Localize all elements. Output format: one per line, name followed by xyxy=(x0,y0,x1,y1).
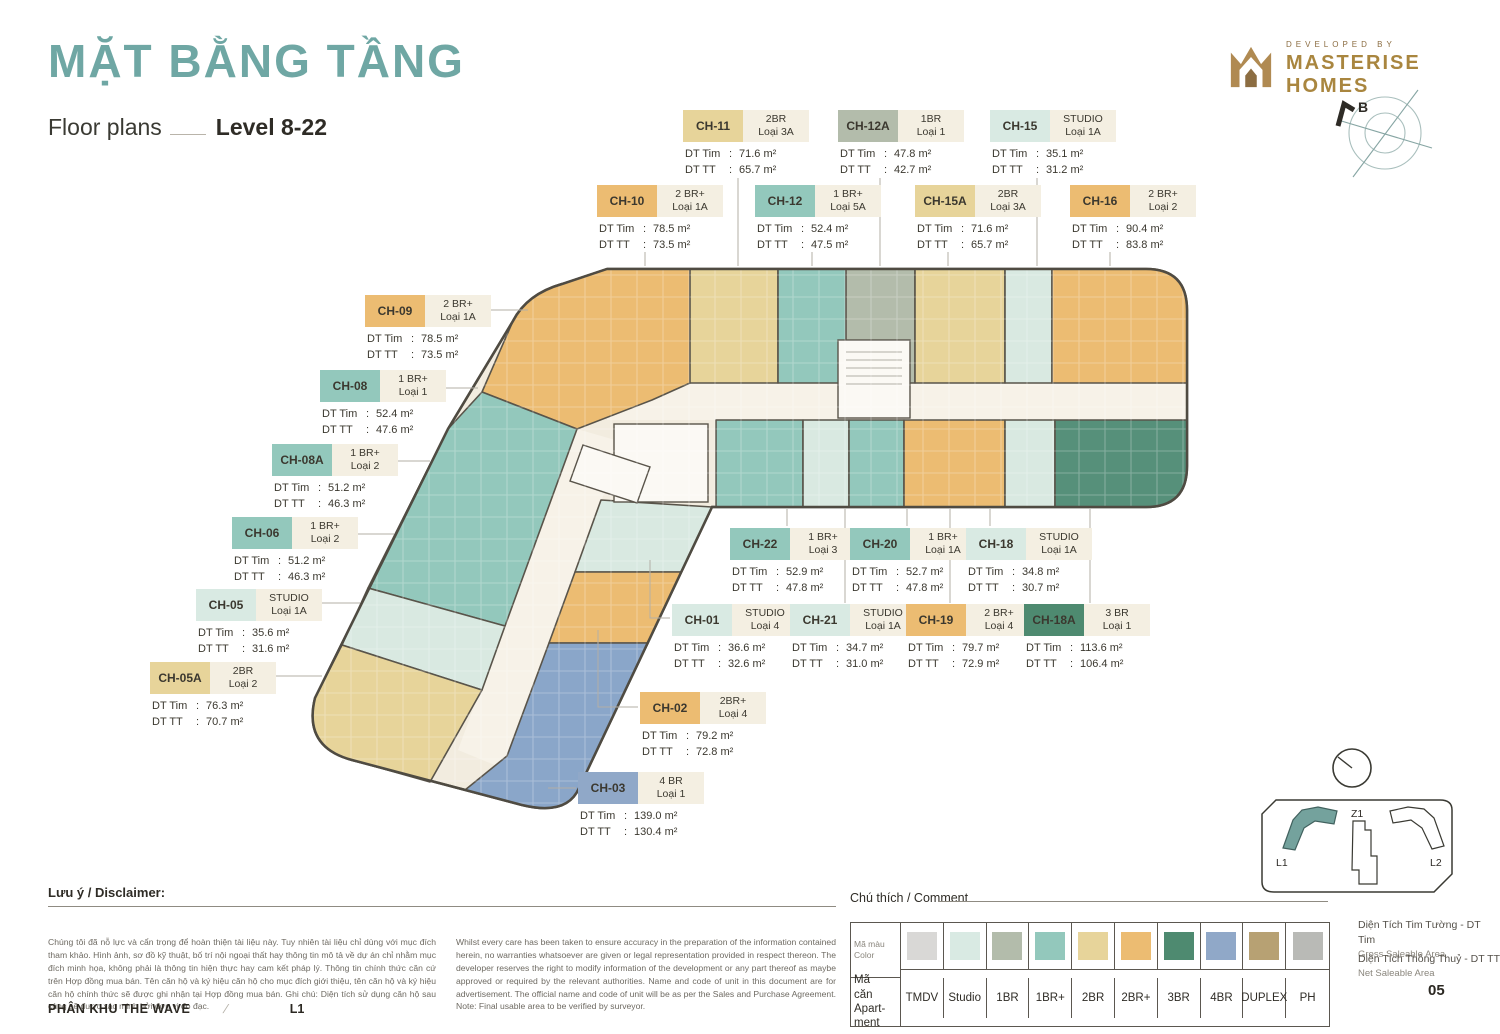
net-area-vi: Diện Tích Thông Thuỷ - DT TT xyxy=(1358,952,1500,967)
legend-swatch-DUPLEX xyxy=(1243,923,1286,970)
unit-net-area: DT TT:31.0 m² xyxy=(792,657,918,673)
unit-gross-area: DT Tim:113.6 m² xyxy=(1026,641,1152,657)
unit-bedroom-type: 2 BR+ xyxy=(1148,188,1177,201)
unit-net-area: DT TT:31.2 m² xyxy=(992,163,1118,179)
unit-code: CH-12A xyxy=(838,110,898,142)
unit-gross-area: DT Tim:139.0 m² xyxy=(580,809,706,825)
unit-callout: CH-15A 2BR Loại 3A DT Tim:71.6 m² DT TT:… xyxy=(915,185,1043,254)
unit-gross-area: DT Tim:51.2 m² xyxy=(274,481,400,497)
unit-layout-type: Loại 1A xyxy=(1041,544,1077,557)
unit-gross-area: DT Tim:79.2 m² xyxy=(642,729,768,745)
legend-swatch-2BR xyxy=(1072,923,1115,970)
unit-type: 1 BR+ Loại 2 xyxy=(292,517,358,549)
unit-gross-area: DT Tim:52.7 m² xyxy=(852,565,978,581)
legend-table: Mã màuColorMãcănApart-mentTMDVStudio1BR1… xyxy=(850,922,1330,1027)
legend-label-PH: PH xyxy=(1286,978,1329,1018)
unit-gross-area: DT Tim:52.4 m² xyxy=(757,222,883,238)
unit-code: CH-21 xyxy=(790,604,850,636)
unit-code: CH-08 xyxy=(320,370,380,402)
legend-label-1BR+: 1BR+ xyxy=(1029,978,1072,1018)
unit-layout-type: Loại 3 xyxy=(809,544,838,557)
unit-layout-type: Loại 2 xyxy=(1149,201,1178,214)
developed-by-label: DEVELOPED BY xyxy=(1286,40,1500,49)
unit-layout-type: Loại 1 xyxy=(399,386,428,399)
unit-areas-text: DT Tim:52.7 m² DT TT:47.8 m² xyxy=(850,565,978,597)
unit-gross-area: DT Tim:52.4 m² xyxy=(322,407,448,423)
unit-type: 2 BR+ Loại 1A xyxy=(425,295,491,327)
unit-callout: CH-12 1 BR+ Loại 5A DT Tim:52.4 m² DT TT… xyxy=(755,185,883,254)
unit-code: CH-19 xyxy=(906,604,966,636)
unit-type: STUDIO Loại 4 xyxy=(732,604,798,636)
unit-bedroom-type: 2 BR+ xyxy=(984,607,1013,620)
unit-layout-type: Loại 2 xyxy=(311,533,340,546)
unit-callout-header: CH-12 1 BR+ Loại 5A xyxy=(755,185,883,217)
unit-net-area: DT TT:30.7 m² xyxy=(968,581,1094,597)
unit-callout: CH-05A 2BR Loại 2 DT Tim:76.3 m² DT TT:7… xyxy=(150,662,278,731)
unit-layout-type: Loại 2 xyxy=(351,460,380,473)
unit-layout-type: Loại 4 xyxy=(751,620,780,633)
unit-gross-area: DT Tim:78.5 m² xyxy=(367,332,493,348)
legend-swatch-Studio xyxy=(944,923,987,970)
unit-gross-area: DT Tim:90.4 m² xyxy=(1072,222,1198,238)
unit-layout-type: Loại 1A xyxy=(440,311,476,324)
unit-type: 1 BR+ Loại 1 xyxy=(380,370,446,402)
unit-bedroom-type: 2 BR+ xyxy=(443,298,472,311)
unit-gross-area: DT Tim:36.6 m² xyxy=(674,641,800,657)
unit-code: CH-01 xyxy=(672,604,732,636)
legend-label-1BR: 1BR xyxy=(987,978,1030,1018)
unit-callout-header: CH-18 STUDIO Loại 1A xyxy=(966,528,1094,560)
unit-type: 1 BR+ Loại 3 xyxy=(790,528,856,560)
area-note-net: Diện Tích Thông Thuỷ - DT TT Net Saleabl… xyxy=(1358,952,1500,981)
unit-areas-text: DT Tim:34.7 m² DT TT:31.0 m² xyxy=(790,641,918,673)
legend-label-2BR: 2BR xyxy=(1072,978,1115,1018)
unit-gross-area: DT Tim:34.8 m² xyxy=(968,565,1094,581)
unit-callout-header: CH-19 2 BR+ Loại 4 xyxy=(906,604,1034,636)
unit-callout-header: CH-11 2BR Loại 3A xyxy=(683,110,811,142)
unit-net-area: DT TT:46.3 m² xyxy=(274,497,400,513)
legend-label-3BR: 3BR xyxy=(1158,978,1201,1018)
unit-code: CH-22 xyxy=(730,528,790,560)
unit-callout-header: CH-01 STUDIO Loại 4 xyxy=(672,604,800,636)
unit-layout-type: Loại 1A xyxy=(1065,126,1101,139)
unit-code: CH-05A xyxy=(150,662,210,694)
unit-areas-text: DT Tim:52.4 m² DT TT:47.6 m² xyxy=(320,407,448,439)
unit-callout: CH-02 2BR+ Loại 4 DT Tim:79.2 m² DT TT:7… xyxy=(640,692,768,761)
unit-areas-text: DT Tim:79.7 m² DT TT:72.9 m² xyxy=(906,641,1034,673)
unit-callout: CH-03 4 BR Loại 1 DT Tim:139.0 m² DT TT:… xyxy=(578,772,706,841)
unit-layout-type: Loại 4 xyxy=(719,708,748,721)
unit-layout-type: Loại 3A xyxy=(758,126,794,139)
unit-callout-header: CH-22 1 BR+ Loại 3 xyxy=(730,528,858,560)
unit-bedroom-type: STUDIO xyxy=(1039,531,1079,544)
unit-type: 4 BR Loại 1 xyxy=(638,772,704,804)
page-subtitle: Floor plans Level 8-22 xyxy=(48,114,327,141)
unit-callout: CH-21 STUDIO Loại 1A DT Tim:34.7 m² DT T… xyxy=(790,604,918,673)
unit-callout-header: CH-20 1 BR+ Loại 1A xyxy=(850,528,978,560)
unit-callout: CH-11 2BR Loại 3A DT Tim:71.6 m² DT TT:6… xyxy=(683,110,811,179)
unit-net-area: DT TT:47.5 m² xyxy=(757,238,883,254)
legend-swatch-TMDV xyxy=(901,923,944,970)
unit-type: 2BR Loại 3A xyxy=(975,185,1041,217)
unit-type: 2 BR+ Loại 1A xyxy=(657,185,723,217)
legend-label-Studio: Studio xyxy=(944,978,987,1018)
unit-net-area: DT TT:130.4 m² xyxy=(580,825,706,841)
unit-type: STUDIO Loại 1A xyxy=(1050,110,1116,142)
unit-code: CH-03 xyxy=(578,772,638,804)
compass-icon: B xyxy=(1338,90,1432,177)
masterise-logo-icon xyxy=(1228,44,1274,95)
unit-callout-header: CH-06 1 BR+ Loại 2 xyxy=(232,517,360,549)
unit-net-area: DT TT:65.7 m² xyxy=(917,238,1043,254)
unit-layout-type: Loại 1 xyxy=(1103,620,1132,633)
unit-layout-type: Loại 1 xyxy=(917,126,946,139)
unit-type: 1 BR+ Loại 2 xyxy=(332,444,398,476)
unit-bedroom-type: 2BR+ xyxy=(720,695,747,708)
legend-swatch-1BR xyxy=(987,923,1030,970)
zone-name: PHÂN KHU THE WAVE xyxy=(48,1002,190,1016)
unit-bedroom-type: 1 BR+ xyxy=(928,531,957,544)
unit-callout-header: CH-08 1 BR+ Loại 1 xyxy=(320,370,448,402)
unit-callout: CH-08 1 BR+ Loại 1 DT Tim:52.4 m² DT TT:… xyxy=(320,370,448,439)
unit-code: CH-11 xyxy=(683,110,743,142)
unit-net-area: DT TT:83.8 m² xyxy=(1072,238,1198,254)
unit-callout: CH-08A 1 BR+ Loại 2 DT Tim:51.2 m² DT TT… xyxy=(272,444,400,513)
unit-type: 2 BR+ Loại 4 xyxy=(966,604,1032,636)
unit-code: CH-18 xyxy=(966,528,1026,560)
unit-net-area: DT TT:65.7 m² xyxy=(685,163,811,179)
unit-callout-header: CH-16 2 BR+ Loại 2 xyxy=(1070,185,1198,217)
unit-code: CH-20 xyxy=(850,528,910,560)
unit-gross-area: DT Tim:51.2 m² xyxy=(234,554,360,570)
unit-areas-text: DT Tim:76.3 m² DT TT:70.7 m² xyxy=(150,699,278,731)
gross-area-vi: Diện Tích Tim Tường - DT Tim xyxy=(1358,918,1500,948)
unit-net-area: DT TT:47.8 m² xyxy=(732,581,858,597)
unit-net-area: DT TT:73.5 m² xyxy=(599,238,725,254)
unit-callout-header: CH-09 2 BR+ Loại 1A xyxy=(365,295,493,327)
unit-bedroom-type: STUDIO xyxy=(1063,113,1103,126)
disclaimer-title: Lưu ý / Disclaimer: xyxy=(48,885,836,907)
legend-label-2BR+: 2BR+ xyxy=(1115,978,1158,1018)
unit-callout: CH-06 1 BR+ Loại 2 DT Tim:51.2 m² DT TT:… xyxy=(232,517,360,586)
legend-color-row-label: Mã màuColor xyxy=(851,923,901,978)
unit-callout-header: CH-15A 2BR Loại 3A xyxy=(915,185,1043,217)
unit-type: 2BR Loại 2 xyxy=(210,662,276,694)
unit-callout: CH-18 STUDIO Loại 1A DT Tim:34.8 m² DT T… xyxy=(966,528,1094,597)
unit-areas-text: DT Tim:52.9 m² DT TT:47.8 m² xyxy=(730,565,858,597)
footer: PHÂN KHU THE WAVE / L1 xyxy=(48,1002,304,1016)
unit-bedroom-type: 1BR xyxy=(921,113,941,126)
unit-code: CH-05 xyxy=(196,589,256,621)
unit-code: CH-08A xyxy=(272,444,332,476)
unit-layout-type: Loại 1 xyxy=(657,788,686,801)
unit-gross-area: DT Tim:76.3 m² xyxy=(152,699,278,715)
net-area-en: Net Saleable Area xyxy=(1358,967,1500,981)
legend-apartment-row-label: MãcănApart-ment xyxy=(851,978,901,1026)
legend-label-TMDV: TMDV xyxy=(901,978,944,1018)
unit-areas-text: DT Tim:113.6 m² DT TT:106.4 m² xyxy=(1024,641,1152,673)
unit-net-area: DT TT:73.5 m² xyxy=(367,348,493,364)
subtitle-divider xyxy=(170,134,206,135)
unit-bedroom-type: STUDIO xyxy=(745,607,785,620)
unit-type: 3 BR Loại 1 xyxy=(1084,604,1150,636)
unit-gross-area: DT Tim:79.7 m² xyxy=(908,641,1034,657)
unit-type: 1BR Loại 1 xyxy=(898,110,964,142)
legend-swatch-2BR+ xyxy=(1115,923,1158,970)
unit-callout: CH-09 2 BR+ Loại 1A DT Tim:78.5 m² DT TT… xyxy=(365,295,493,364)
legend-swatch-3BR xyxy=(1158,923,1201,970)
page-title: MẶT BẰNG TẦNG xyxy=(48,34,465,88)
unit-callout-header: CH-08A 1 BR+ Loại 2 xyxy=(272,444,400,476)
unit-areas-text: DT Tim:71.6 m² DT TT:65.7 m² xyxy=(683,147,811,179)
unit-net-area: DT TT:106.4 m² xyxy=(1026,657,1152,673)
unit-layout-type: Loại 4 xyxy=(985,620,1014,633)
unit-bedroom-type: 2 BR+ xyxy=(675,188,704,201)
unit-type: STUDIO Loại 1A xyxy=(1026,528,1092,560)
unit-callout: CH-10 2 BR+ Loại 1A DT Tim:78.5 m² DT TT… xyxy=(597,185,725,254)
unit-type: 2BR Loại 3A xyxy=(743,110,809,142)
unit-bedroom-type: 1 BR+ xyxy=(398,373,427,386)
unit-net-area: DT TT:47.6 m² xyxy=(322,423,448,439)
unit-areas-text: DT Tim:78.5 m² DT TT:73.5 m² xyxy=(365,332,493,364)
unit-bedroom-type: 4 BR xyxy=(659,775,682,788)
clock-icon xyxy=(1333,749,1371,787)
unit-gross-area: DT Tim:52.9 m² xyxy=(732,565,858,581)
legend-label-4BR: 4BR xyxy=(1201,978,1244,1018)
developer-name: MASTERISE HOMES xyxy=(1286,52,1500,98)
legend-swatch-1BR+ xyxy=(1029,923,1072,970)
unit-net-area: DT TT:70.7 m² xyxy=(152,715,278,731)
unit-areas-text: DT Tim:79.2 m² DT TT:72.8 m² xyxy=(640,729,768,761)
unit-type: 2BR+ Loại 4 xyxy=(700,692,766,724)
unit-code: CH-06 xyxy=(232,517,292,549)
unit-gross-area: DT Tim:71.6 m² xyxy=(685,147,811,163)
unit-layout-type: Loại 5A xyxy=(830,201,866,214)
unit-gross-area: DT Tim:35.6 m² xyxy=(198,626,324,642)
unit-areas-text: DT Tim:90.4 m² DT TT:83.8 m² xyxy=(1070,222,1198,254)
legend-title-rule xyxy=(938,901,1328,902)
unit-callout: CH-20 1 BR+ Loại 1A DT Tim:52.7 m² DT TT… xyxy=(850,528,978,597)
unit-bedroom-type: 1 BR+ xyxy=(833,188,862,201)
unit-callout-header: CH-18A 3 BR Loại 1 xyxy=(1024,604,1152,636)
subtitle-level: Level 8-22 xyxy=(216,114,327,141)
unit-areas-text: DT Tim:36.6 m² DT TT:32.6 m² xyxy=(672,641,800,673)
unit-code: CH-15A xyxy=(915,185,975,217)
unit-gross-area: DT Tim:34.7 m² xyxy=(792,641,918,657)
unit-code: CH-12 xyxy=(755,185,815,217)
unit-gross-area: DT Tim:35.1 m² xyxy=(992,147,1118,163)
unit-layout-type: Loại 3A xyxy=(990,201,1026,214)
legend-label-DUPLEX: DUPLEX xyxy=(1243,978,1286,1018)
unit-callout-header: CH-05A 2BR Loại 2 xyxy=(150,662,278,694)
unit-areas-text: DT Tim:52.4 m² DT TT:47.5 m² xyxy=(755,222,883,254)
unit-callout: CH-18A 3 BR Loại 1 DT Tim:113.6 m² DT TT… xyxy=(1024,604,1152,673)
unit-bedroom-type: 1 BR+ xyxy=(808,531,837,544)
unit-callout: CH-01 STUDIO Loại 4 DT Tim:36.6 m² DT TT… xyxy=(672,604,800,673)
legend-title: Chú thích / Comment xyxy=(850,891,1328,905)
unit-callout: CH-22 1 BR+ Loại 3 DT Tim:52.9 m² DT TT:… xyxy=(730,528,858,597)
unit-layout-type: Loại 2 xyxy=(229,678,258,691)
unit-bedroom-type: 2BR xyxy=(766,113,786,126)
unit-net-area: DT TT:32.6 m² xyxy=(674,657,800,673)
unit-code: CH-18A xyxy=(1024,604,1084,636)
unit-net-area: DT TT:46.3 m² xyxy=(234,570,360,586)
subtitle-floor-plans: Floor plans xyxy=(48,114,162,141)
disclaimer-text-en: Whilst every care has been taken to ensu… xyxy=(456,936,836,1013)
unit-callout-header: CH-05 STUDIO Loại 1A xyxy=(196,589,324,621)
unit-areas-text: DT Tim:47.8 m² DT TT:42.7 m² xyxy=(838,147,966,179)
minimap-l2-label: L2 xyxy=(1430,857,1442,869)
unit-bedroom-type: 3 BR xyxy=(1105,607,1128,620)
page-number: 05 xyxy=(1428,982,1445,999)
unit-callout-header: CH-03 4 BR Loại 1 xyxy=(578,772,706,804)
unit-bedroom-type: 2BR xyxy=(233,665,253,678)
unit-bedroom-type: 2BR xyxy=(998,188,1018,201)
legend-swatch-4BR xyxy=(1201,923,1244,970)
unit-areas-text: DT Tim:34.8 m² DT TT:30.7 m² xyxy=(966,565,1094,597)
unit-code: CH-09 xyxy=(365,295,425,327)
unit-net-area: DT TT:31.6 m² xyxy=(198,642,324,658)
unit-type: 2 BR+ Loại 2 xyxy=(1130,185,1196,217)
unit-net-area: DT TT:72.8 m² xyxy=(642,745,768,761)
unit-code: CH-10 xyxy=(597,185,657,217)
unit-areas-text: DT Tim:35.6 m² DT TT:31.6 m² xyxy=(196,626,324,658)
unit-bedroom-type: STUDIO xyxy=(269,592,309,605)
unit-areas-text: DT Tim:35.1 m² DT TT:31.2 m² xyxy=(990,147,1118,179)
legend-title-text: Chú thích / Comment xyxy=(850,891,978,905)
floor-plan-page: B L1 Z1 L2 MẶT BẰNG TẦNG Floor plans Lev… xyxy=(0,0,1500,1034)
unit-bedroom-type: 1 BR+ xyxy=(310,520,339,533)
unit-net-area: DT TT:72.9 m² xyxy=(908,657,1034,673)
unit-layout-type: Loại 1A xyxy=(672,201,708,214)
unit-gross-area: DT Tim:78.5 m² xyxy=(599,222,725,238)
unit-areas-text: DT Tim:71.6 m² DT TT:65.7 m² xyxy=(915,222,1043,254)
footer-level: L1 xyxy=(290,1002,305,1016)
minimap-l1-label: L1 xyxy=(1276,857,1288,869)
unit-gross-area: DT Tim:47.8 m² xyxy=(840,147,966,163)
unit-layout-type: Loại 1A xyxy=(271,605,307,618)
unit-callout: CH-05 STUDIO Loại 1A DT Tim:35.6 m² DT T… xyxy=(196,589,324,658)
unit-net-area: DT TT:47.8 m² xyxy=(852,581,978,597)
unit-callout-header: CH-10 2 BR+ Loại 1A xyxy=(597,185,725,217)
unit-bedroom-type: STUDIO xyxy=(863,607,903,620)
unit-callout: CH-19 2 BR+ Loại 4 DT Tim:79.7 m² DT TT:… xyxy=(906,604,1034,673)
unit-callout-header: CH-21 STUDIO Loại 1A xyxy=(790,604,918,636)
unit-callout-header: CH-15 STUDIO Loại 1A xyxy=(990,110,1118,142)
keyplan-minimap: L1 Z1 L2 xyxy=(1262,800,1452,892)
unit-code: CH-02 xyxy=(640,692,700,724)
unit-callout-header: CH-12A 1BR Loại 1 xyxy=(838,110,966,142)
unit-gross-area: DT Tim:71.6 m² xyxy=(917,222,1043,238)
unit-code: CH-16 xyxy=(1070,185,1130,217)
minimap-z1-label: Z1 xyxy=(1351,808,1363,820)
footer-slash-icon: / xyxy=(222,1002,231,1016)
unit-layout-type: Loại 1A xyxy=(925,544,961,557)
unit-callout: CH-15 STUDIO Loại 1A DT Tim:35.1 m² DT T… xyxy=(990,110,1118,179)
unit-bedroom-type: 1 BR+ xyxy=(350,447,379,460)
unit-type: STUDIO Loại 1A xyxy=(256,589,322,621)
unit-layout-type: Loại 1A xyxy=(865,620,901,633)
unit-code: CH-15 xyxy=(990,110,1050,142)
developer-logo: DEVELOPED BY MASTERISE HOMES xyxy=(1228,40,1500,98)
legend-swatch-PH xyxy=(1286,923,1329,970)
unit-callout-header: CH-02 2BR+ Loại 4 xyxy=(640,692,768,724)
unit-callout: CH-12A 1BR Loại 1 DT Tim:47.8 m² DT TT:4… xyxy=(838,110,966,179)
unit-areas-text: DT Tim:51.2 m² DT TT:46.3 m² xyxy=(232,554,360,586)
unit-areas-text: DT Tim:139.0 m² DT TT:130.4 m² xyxy=(578,809,706,841)
unit-areas-text: DT Tim:51.2 m² DT TT:46.3 m² xyxy=(272,481,400,513)
unit-areas-text: DT Tim:78.5 m² DT TT:73.5 m² xyxy=(597,222,725,254)
unit-callout: CH-16 2 BR+ Loại 2 DT Tim:90.4 m² DT TT:… xyxy=(1070,185,1198,254)
unit-net-area: DT TT:42.7 m² xyxy=(840,163,966,179)
compass-label: B xyxy=(1358,99,1368,115)
unit-type: 1 BR+ Loại 5A xyxy=(815,185,881,217)
